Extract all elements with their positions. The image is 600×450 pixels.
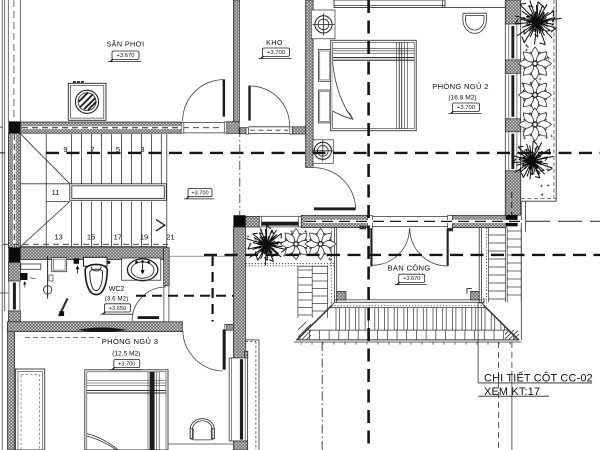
svg-text:11: 11 (52, 188, 60, 197)
svg-text:(12.5 M2): (12.5 M2) (112, 351, 140, 358)
svg-text:13: 13 (54, 233, 62, 242)
svg-text:+3.670: +3.670 (116, 53, 135, 59)
svg-text:+3.650: +3.650 (109, 306, 126, 312)
svg-text:KHO: KHO (266, 38, 283, 47)
svg-text:SÂN PHƠI: SÂN PHƠI (106, 40, 144, 49)
svg-text:CHI TIẾT CỘT CC-02: CHI TIẾT CỘT CC-02 (484, 371, 593, 384)
svg-text:PHÒNG NGỦ 2: PHÒNG NGỦ 2 (432, 82, 488, 91)
svg-text:PHÒNG NGỦ 3: PHÒNG NGỦ 3 (102, 337, 158, 346)
svg-text:+3.700: +3.700 (118, 361, 135, 367)
svg-text:+3.700: +3.700 (267, 50, 286, 56)
svg-text:(16.8 M2): (16.8 M2) (448, 95, 476, 102)
svg-text:15: 15 (87, 233, 95, 242)
svg-text:(3.6 M2): (3.6 M2) (105, 296, 128, 303)
svg-text:19: 19 (140, 233, 148, 242)
svg-text:+3.700: +3.700 (191, 191, 208, 197)
svg-text:BAN CÔNG: BAN CÔNG (388, 263, 431, 272)
svg-text:21: 21 (166, 233, 174, 242)
svg-text:WC2: WC2 (109, 286, 125, 293)
svg-text:+3.700: +3.700 (457, 105, 476, 111)
svg-text:3: 3 (140, 145, 144, 154)
svg-text:+3.670: +3.670 (403, 276, 420, 282)
svg-text:17: 17 (114, 233, 122, 242)
